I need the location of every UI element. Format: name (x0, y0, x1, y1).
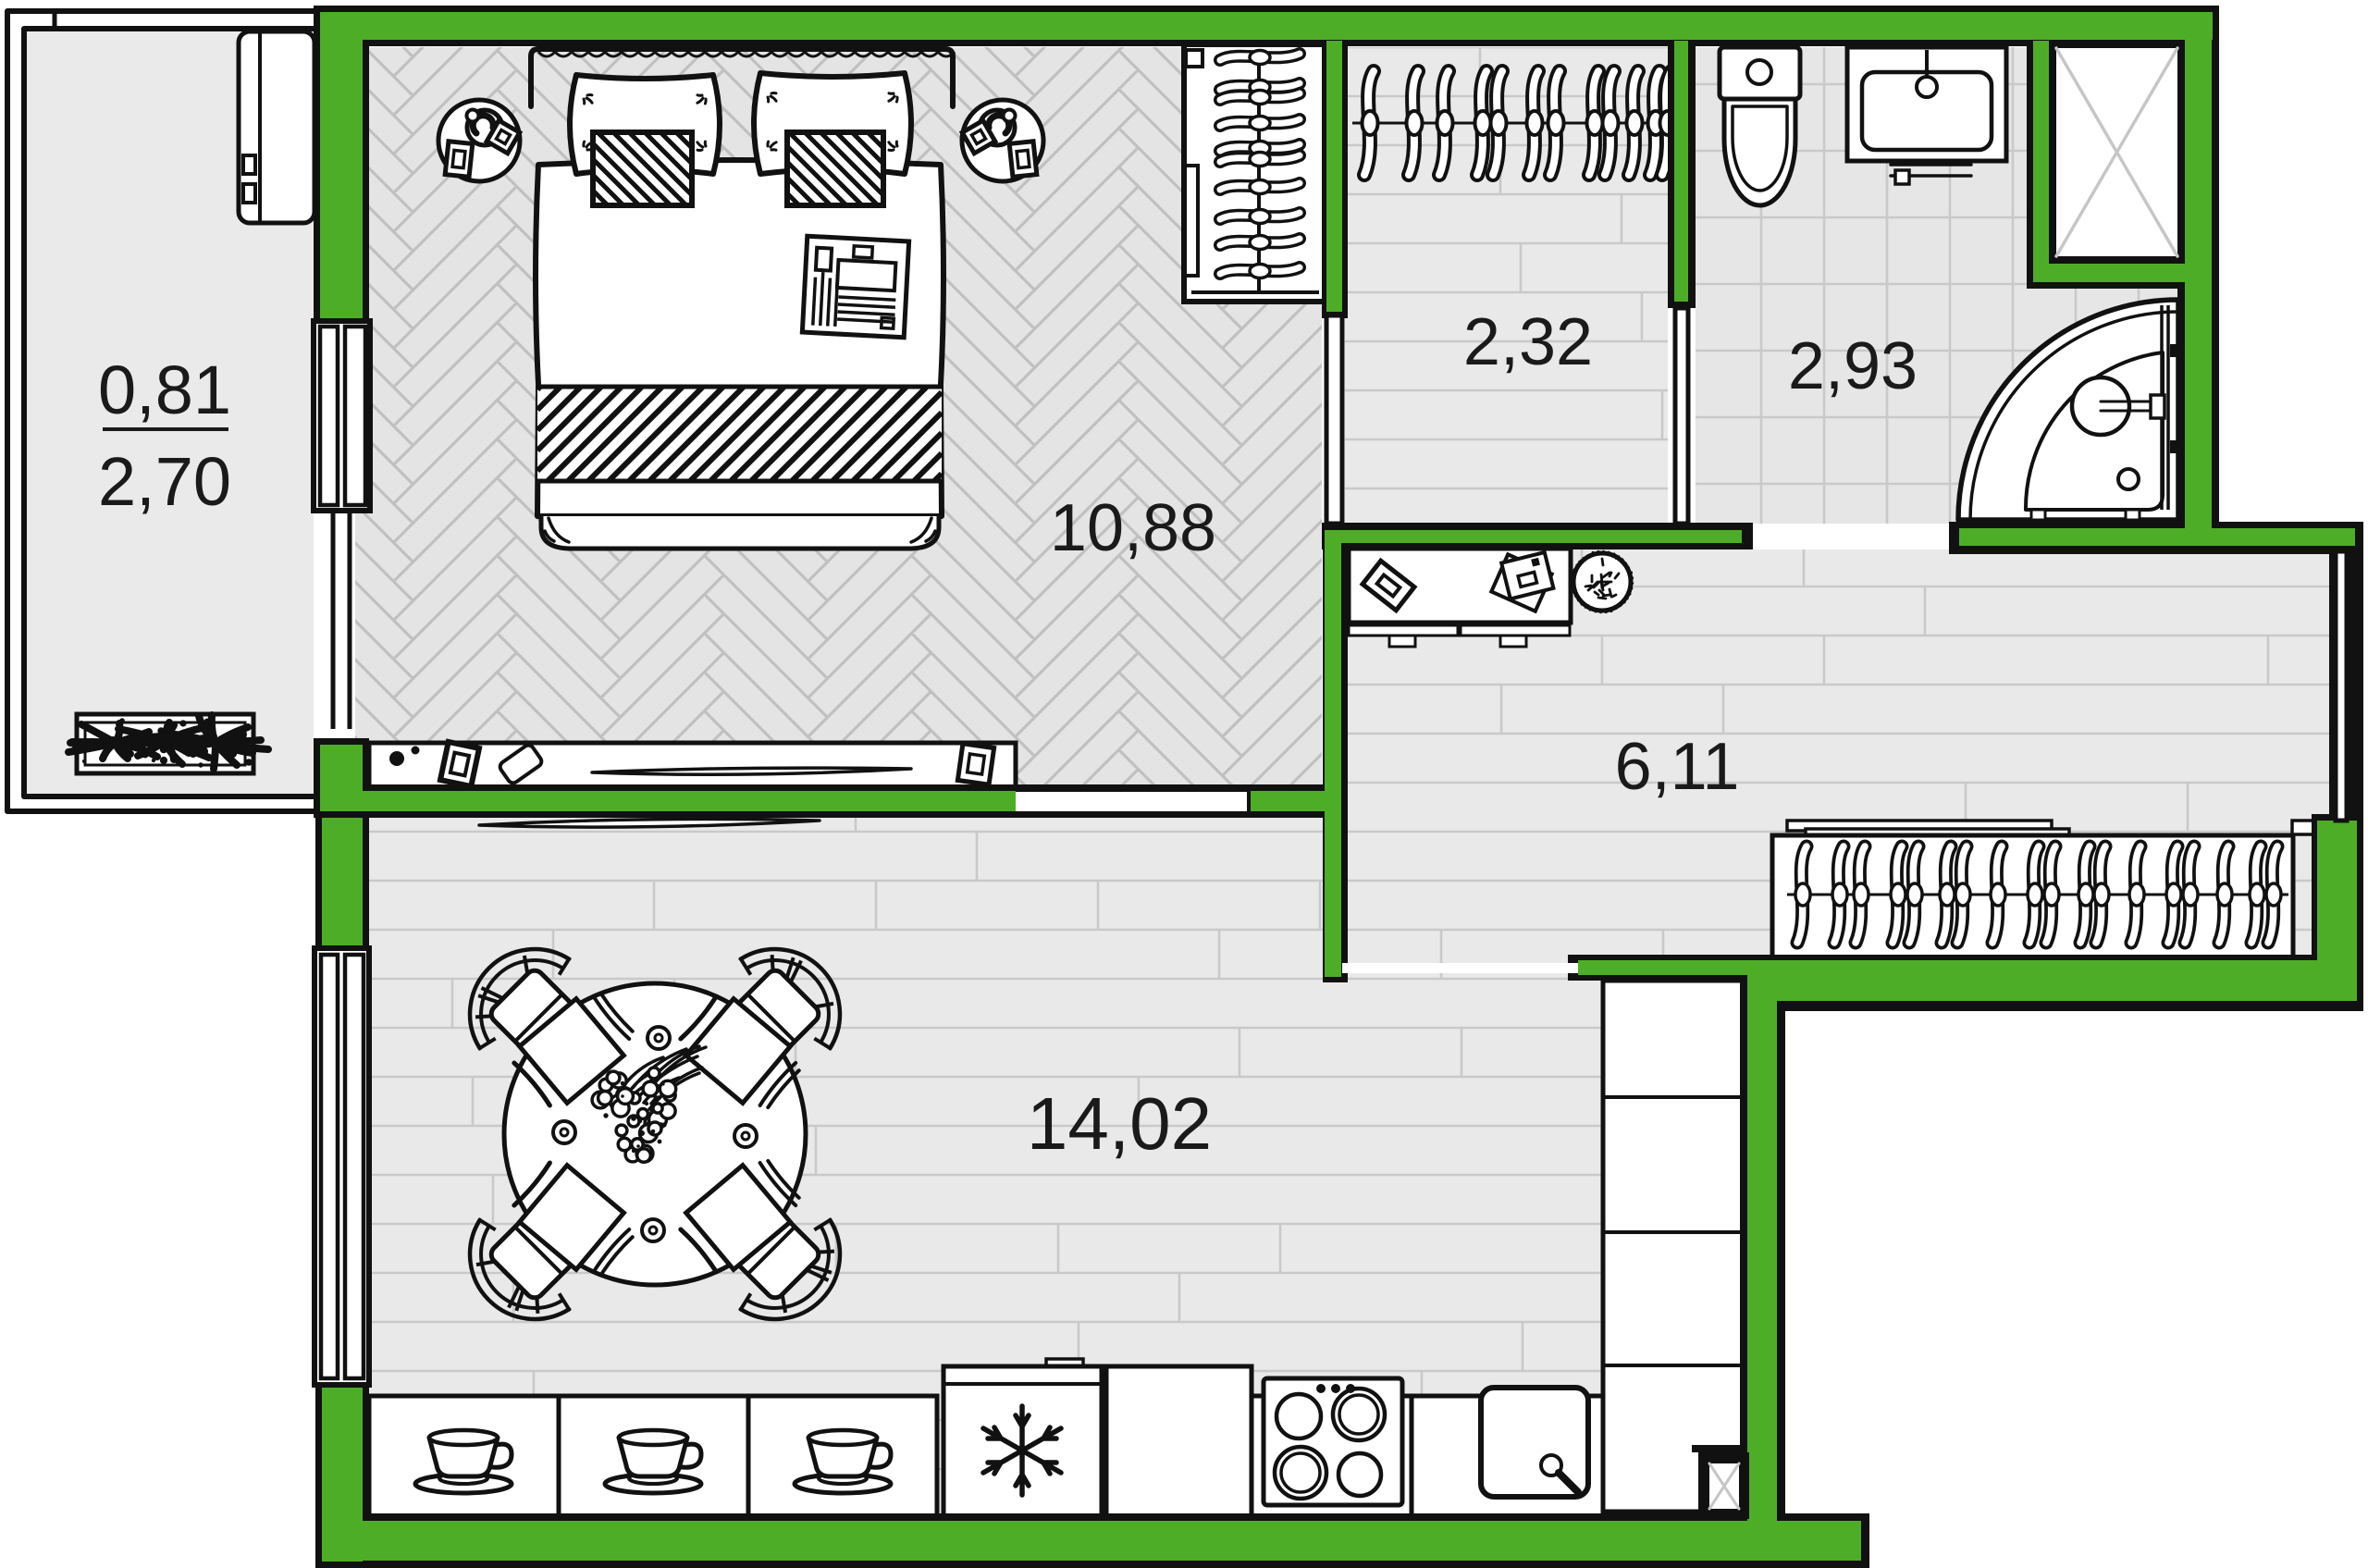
svg-text:0,81: 0,81 (98, 352, 231, 428)
svg-text:6,11: 6,11 (1615, 730, 1740, 804)
svg-text:2,93: 2,93 (1788, 329, 1918, 403)
svg-text:2,32: 2,32 (1463, 305, 1593, 379)
svg-text:14,02: 14,02 (1027, 1082, 1212, 1165)
svg-text:2,70: 2,70 (98, 443, 231, 520)
svg-text:10,88: 10,88 (1050, 491, 1216, 565)
